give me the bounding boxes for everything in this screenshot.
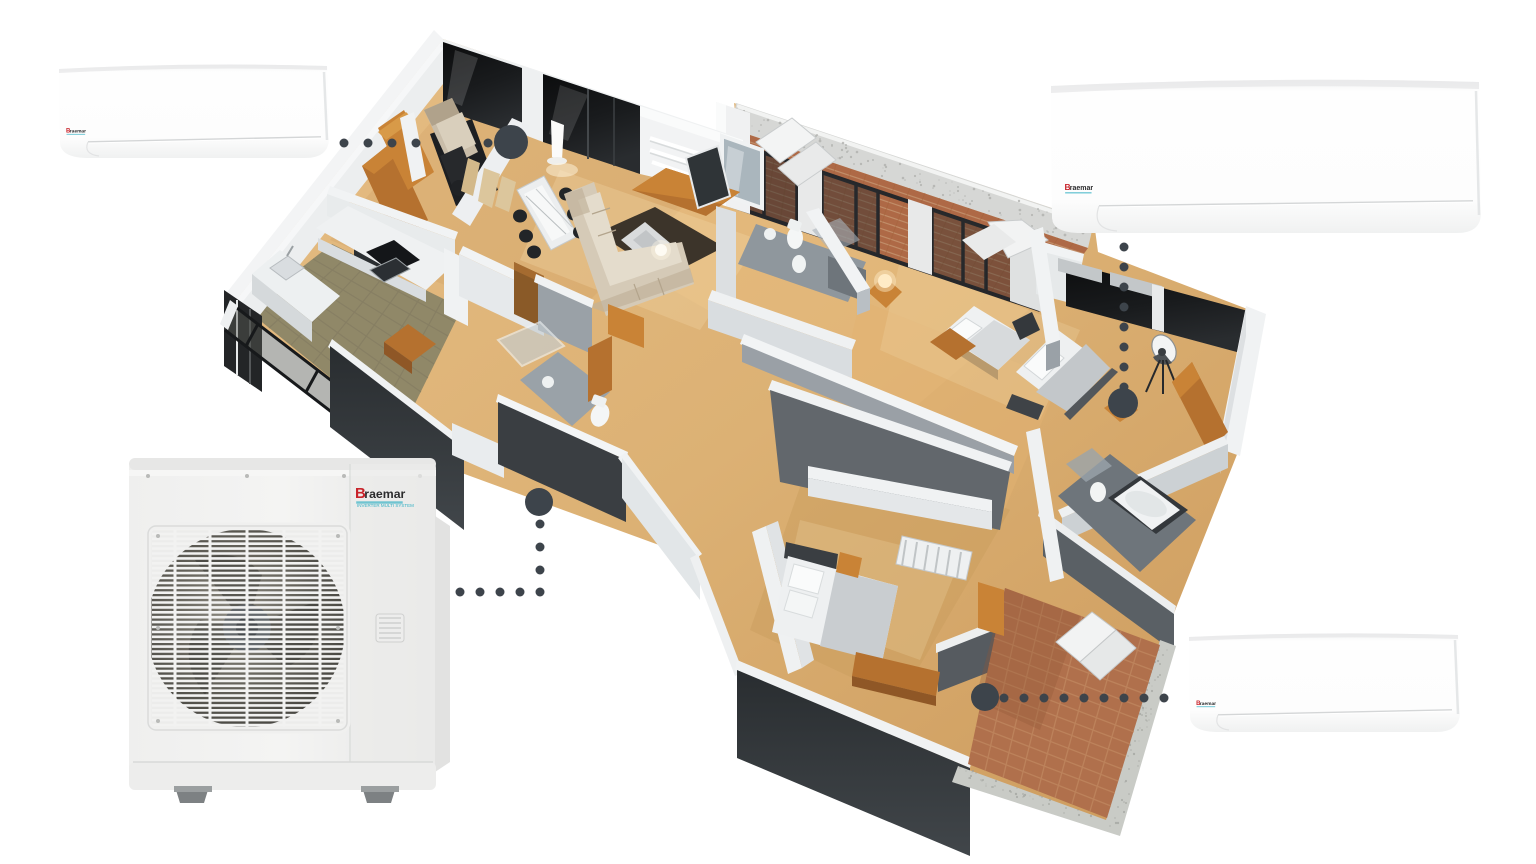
svg-text:raemar: raemar (1070, 185, 1094, 192)
svg-text:raemar: raemar (70, 129, 86, 135)
svg-text:raemar: raemar (364, 487, 405, 501)
svg-text:INVERTER MULTI SYSTEM: INVERTER MULTI SYSTEM (357, 503, 414, 508)
svg-text:raemar: raemar (1200, 701, 1216, 707)
